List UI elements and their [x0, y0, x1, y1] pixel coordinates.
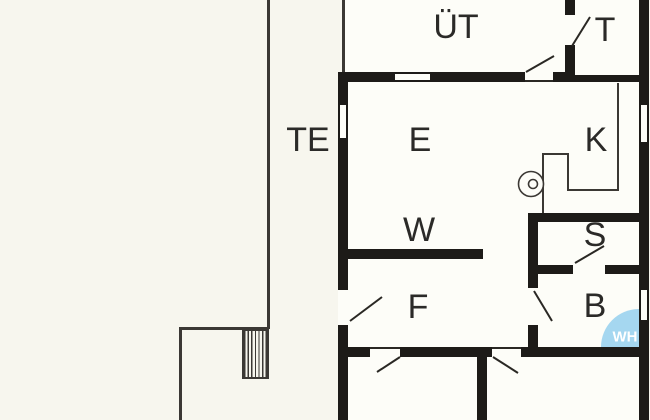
- door-threshold-bottom-1: [370, 347, 400, 349]
- wall-t-k: [553, 75, 649, 82]
- room-label-w: W: [403, 213, 435, 247]
- door-threshold-ut: [525, 80, 553, 82]
- window-left-living: [340, 105, 346, 138]
- floor-plan: ÜT T TE E K W S F B WH: [0, 0, 650, 420]
- wall-s-b-divider-right: [605, 265, 649, 274]
- terrace-edge-lower-vertical: [179, 327, 182, 420]
- window-right-kitchen: [641, 105, 647, 142]
- room-label-k: K: [585, 123, 608, 157]
- window-top-ut-e: [395, 74, 430, 80]
- room-label-t: T: [595, 13, 616, 47]
- wall-w-stub: [348, 249, 483, 259]
- wall-bottom-left: [338, 347, 370, 357]
- wall-hall-sb-upper: [528, 222, 538, 288]
- wall-hall-sb-lower: [528, 325, 538, 347]
- terrace-edge-vertical: [267, 0, 270, 329]
- wall-s-b-divider-left: [538, 265, 573, 274]
- room-label-wh: WH: [613, 330, 638, 345]
- wall-bottom-vertical: [477, 357, 487, 420]
- terrace-wall-line-upper: [342, 0, 345, 72]
- room-label-te: TE: [286, 123, 329, 157]
- window-right-b-room: [641, 290, 647, 320]
- wall-ut-t-upper: [565, 0, 575, 15]
- wall-bottom-right: [521, 347, 649, 357]
- stairs-icon: [242, 329, 269, 379]
- room-label-b: B: [584, 289, 607, 323]
- room-label-s: S: [584, 218, 607, 252]
- wall-bottom-middle: [400, 347, 492, 357]
- wall-top-ut-e: [338, 72, 525, 82]
- room-label-f: F: [408, 290, 429, 324]
- door-threshold-bottom-2: [492, 347, 521, 349]
- wall-left-lower: [338, 325, 348, 420]
- wall-right: [639, 0, 649, 420]
- room-label-e: E: [409, 123, 432, 157]
- room-label-ut: ÜT: [433, 10, 478, 44]
